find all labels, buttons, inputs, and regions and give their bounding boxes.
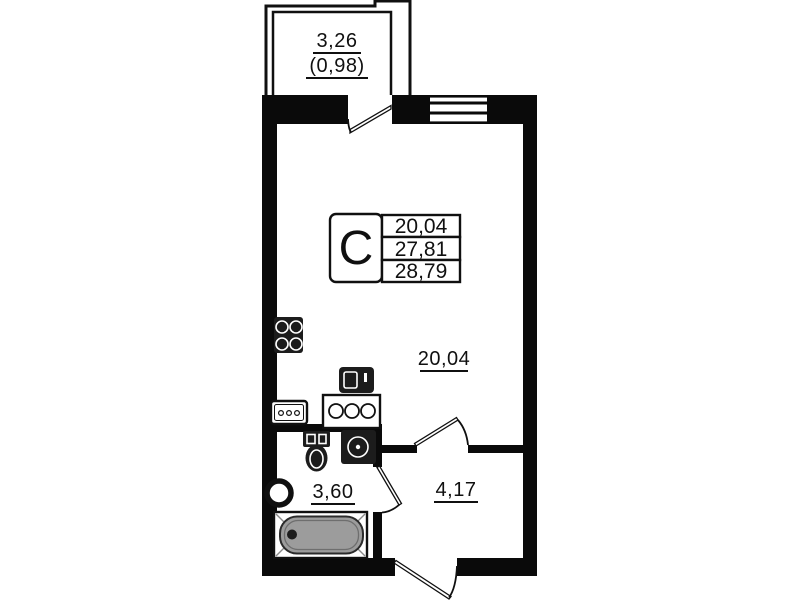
bathroom-sink-drain (356, 445, 360, 449)
wall-hallway-top-right (468, 445, 523, 453)
window-line-mid1 (430, 102, 487, 105)
wall-right (523, 95, 537, 576)
washbasin-bowl (267, 481, 291, 505)
wall-top-mid (392, 95, 430, 124)
bathroom-sink-icon (341, 430, 376, 464)
hallway-door (415, 418, 469, 447)
window-opening (430, 95, 487, 124)
unit-area-total-balcony: 28,79 (395, 260, 448, 283)
wall-bottom-left (262, 558, 395, 576)
entrance-door-arc (449, 566, 457, 598)
balcony-area-label: 3,26 (317, 30, 358, 52)
window (430, 95, 487, 124)
bathroom-area-label: 3,60 (313, 481, 354, 503)
bathtub-drain (287, 530, 297, 540)
washbasin-icon (267, 481, 291, 505)
window-line-top (430, 95, 487, 98)
cooktop-body (323, 395, 380, 428)
floor-plan: С 20,04 27,81 28,79 3,26 (0,98) 20,04 3,… (0, 0, 799, 600)
balcony-area-reduced-label: (0,98) (309, 55, 364, 77)
cooktop-3-burner-icon (323, 395, 380, 428)
unit-type-label: С (339, 222, 374, 275)
unit-area-living: 20,04 (395, 215, 448, 238)
bathroom-door-arc (382, 505, 400, 513)
balcony-door-leaf (350, 106, 391, 134)
unit-info-card: С 20,04 27,81 28,79 (330, 214, 460, 283)
entrance-door-leaf (394, 561, 451, 600)
living-area-label: 20,04 (418, 348, 471, 370)
balcony-door (348, 106, 391, 134)
bathtub-icon (274, 512, 367, 558)
balcony-door-arc (348, 119, 351, 132)
unit-area-total: 27,81 (395, 238, 448, 261)
wall-hallway-top-left (382, 445, 417, 453)
hallway-door-leaf (415, 418, 459, 447)
window-line-mid2 (430, 112, 487, 115)
hallway-door-arc (458, 420, 468, 445)
entrance-door (394, 561, 457, 600)
bathroom-door (377, 466, 402, 513)
washing-machine-icon (271, 401, 307, 424)
stove-4-burner-icon (274, 317, 303, 353)
kitchen-fixtures (271, 317, 380, 428)
wall-bottom-right (457, 558, 537, 576)
sink-faucet (364, 373, 367, 382)
toilet-icon (303, 431, 330, 472)
bathroom-door-leaf (377, 466, 402, 505)
hallway-area-label: 4,17 (436, 479, 477, 501)
wall-bathroom-right-lower (373, 512, 382, 558)
floor-plan-canvas: С 20,04 27,81 28,79 3,26 (0,98) 20,04 3,… (0, 0, 799, 600)
window-line-bottom (430, 121, 487, 124)
kitchen-sink-icon (339, 367, 374, 393)
